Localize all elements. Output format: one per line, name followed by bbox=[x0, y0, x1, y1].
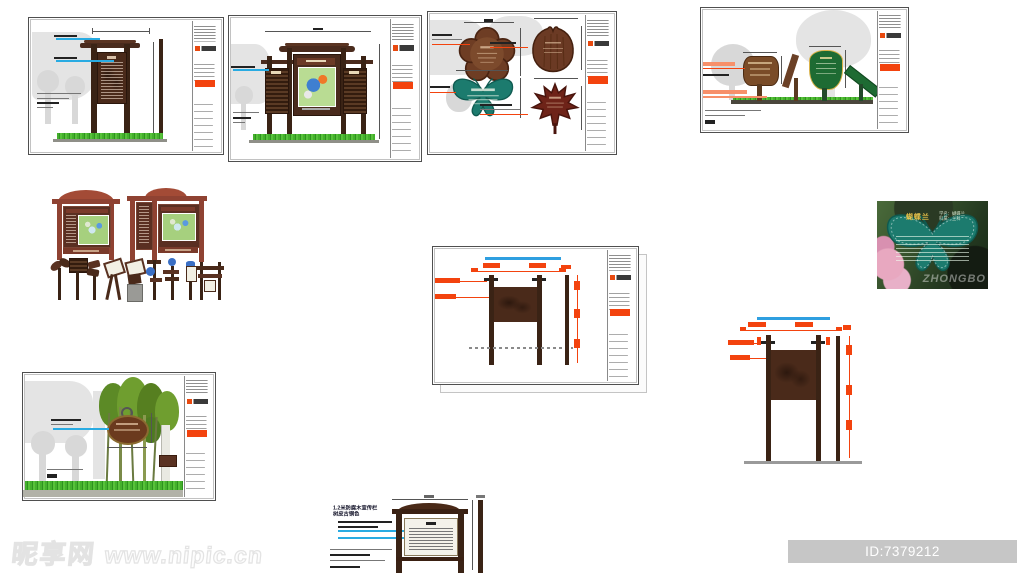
crossbar bbox=[396, 557, 464, 561]
dimension-tick-orange bbox=[846, 385, 852, 395]
tree-trunk-silhouette bbox=[39, 449, 46, 481]
dimension-tick-orange bbox=[826, 337, 830, 345]
company-logo bbox=[880, 33, 901, 38]
dimension-line bbox=[464, 22, 514, 23]
company-logo bbox=[195, 46, 216, 51]
ground-line bbox=[744, 461, 862, 464]
dimension-line bbox=[107, 447, 147, 448]
dimension-line-vertical bbox=[472, 500, 473, 570]
spec-note: 1.2米防腐木宣传栏 树皮古铜色 bbox=[333, 505, 377, 517]
sign-post bbox=[93, 276, 96, 300]
panel-header bbox=[161, 207, 195, 211]
leader-line-cyan bbox=[233, 69, 269, 71]
sign-post bbox=[76, 271, 79, 300]
dimension-label bbox=[484, 19, 493, 22]
green-sign-post bbox=[859, 84, 863, 101]
panel-caption bbox=[302, 108, 330, 110]
slanted-sign-post bbox=[794, 78, 798, 101]
bottom-bar-text bbox=[165, 249, 191, 251]
center-panel-frame bbox=[293, 54, 341, 116]
slat-panel-right bbox=[343, 68, 367, 114]
blue-globe bbox=[146, 267, 155, 276]
note-line bbox=[37, 93, 81, 94]
park-map bbox=[162, 213, 196, 241]
callout-bar bbox=[480, 104, 512, 106]
bottom-bar-text bbox=[73, 250, 99, 252]
note-line bbox=[330, 554, 370, 556]
plaque-green-shield bbox=[809, 50, 843, 90]
leader-line-orange bbox=[490, 47, 528, 48]
dimension-line bbox=[265, 31, 371, 32]
note-line bbox=[705, 115, 745, 116]
callout-bar bbox=[338, 521, 392, 523]
map-board-1 bbox=[52, 190, 120, 262]
narrow-text-panel bbox=[136, 202, 153, 250]
title-block bbox=[192, 21, 220, 151]
drawing-sheet-notice-board bbox=[28, 17, 224, 155]
note-line bbox=[233, 112, 259, 113]
map-board-2 bbox=[127, 188, 207, 264]
plant-sign-body-text bbox=[896, 236, 969, 264]
nipic-watermark: 昵享网 www.nipic.cn bbox=[10, 534, 265, 571]
dimension-line-vertical bbox=[581, 86, 582, 130]
blue-sphere-finial bbox=[168, 258, 176, 266]
blue-reference-line bbox=[757, 317, 830, 320]
tree-trunk-silhouette bbox=[72, 90, 78, 124]
approval-stamp bbox=[610, 309, 630, 316]
board-bottom-bar bbox=[158, 247, 198, 253]
dimension-tick-orange bbox=[574, 339, 580, 348]
panel-header bbox=[66, 209, 108, 213]
plaque-text-line bbox=[116, 423, 138, 425]
note-line bbox=[37, 107, 53, 108]
company-logo bbox=[187, 399, 208, 404]
plaque-maple-leaf bbox=[528, 82, 582, 136]
note-line bbox=[37, 102, 59, 104]
callout-bar bbox=[54, 57, 77, 59]
title-block bbox=[585, 15, 613, 151]
spec-note-line: 树皮古铜色 bbox=[333, 511, 377, 517]
park-map bbox=[78, 215, 109, 245]
tree-trunk-silhouette bbox=[45, 86, 51, 124]
leader-line-cyan bbox=[53, 428, 109, 430]
lectern-base bbox=[127, 284, 143, 302]
panel-title-bar bbox=[107, 56, 116, 59]
dimension-label-orange bbox=[843, 325, 851, 330]
note-line bbox=[705, 110, 761, 111]
post-side-view bbox=[836, 336, 840, 462]
callout-bar-salmon bbox=[703, 62, 735, 66]
dimension-tick bbox=[149, 28, 150, 34]
dimension-line bbox=[92, 31, 150, 32]
note-block bbox=[705, 120, 715, 124]
slat-panel-label bbox=[349, 71, 359, 74]
plaque-post bbox=[822, 88, 827, 101]
tree-mounted-sign bbox=[159, 455, 177, 467]
panel-title bbox=[426, 522, 436, 525]
panel-header-text bbox=[306, 60, 326, 62]
plaque-text-line bbox=[816, 73, 836, 74]
dimension-tick-orange bbox=[740, 327, 746, 331]
approval-stamp bbox=[187, 430, 207, 437]
drawing-sheet-tree-scene bbox=[22, 372, 216, 501]
post-side-view bbox=[478, 500, 483, 573]
dimension-tick-orange bbox=[574, 281, 580, 290]
dimension-label bbox=[476, 495, 485, 498]
drawing-sheet-plaque-signs bbox=[700, 7, 909, 133]
crossbar bbox=[196, 266, 224, 270]
dimension-line bbox=[456, 70, 508, 71]
board-post-left bbox=[57, 199, 62, 260]
dimension-label-orange bbox=[529, 263, 546, 268]
dimension-line bbox=[534, 78, 578, 79]
sign-post-left bbox=[396, 509, 402, 573]
plaque-text-line bbox=[114, 429, 140, 431]
plaque-post bbox=[757, 84, 762, 101]
slat-panel-left bbox=[265, 68, 289, 114]
note-line bbox=[330, 549, 392, 550]
butterfly-photo-card: 蝴蝶兰 学名：蝴蝶兰 科属：兰科 ZHONGBO bbox=[877, 201, 988, 289]
panel-text-lines bbox=[409, 528, 453, 552]
stock-preview-canvas: 蝴蝶兰 学名：蝴蝶兰 科属：兰科 ZHONGBO bbox=[0, 0, 1024, 573]
small-signage-set bbox=[50, 258, 220, 304]
ground-bar bbox=[249, 140, 379, 143]
company-logo bbox=[610, 275, 631, 280]
approval-stamp bbox=[880, 64, 900, 70]
dimension-line bbox=[809, 46, 841, 47]
approval-stamp bbox=[393, 82, 413, 90]
sign-post bbox=[58, 268, 61, 300]
leader-line-cyan bbox=[56, 38, 100, 40]
dimension-line-vertical bbox=[520, 78, 521, 118]
sign-post-right bbox=[816, 335, 821, 462]
callout-bar bbox=[430, 86, 450, 88]
board-bottom-bar bbox=[63, 248, 109, 254]
dimension-line-vertical bbox=[151, 413, 152, 443]
drawing-sheet-gateway-board bbox=[228, 15, 422, 162]
post-side-view bbox=[565, 275, 569, 365]
note-line bbox=[233, 117, 251, 119]
note-line bbox=[51, 424, 73, 425]
leader-line-cyan bbox=[56, 60, 114, 62]
title-block bbox=[390, 19, 418, 158]
park-map bbox=[298, 67, 336, 107]
crossbar bbox=[198, 274, 222, 278]
dimension-tick-orange bbox=[757, 337, 761, 345]
plaque-text-line bbox=[820, 57, 832, 59]
top-beam bbox=[392, 509, 468, 514]
note-line bbox=[480, 109, 520, 110]
lectern-leg bbox=[114, 274, 121, 300]
title-block bbox=[607, 250, 635, 381]
panel-text-column bbox=[139, 206, 149, 244]
blue-reference-line bbox=[485, 257, 561, 260]
approval-stamp bbox=[588, 76, 608, 83]
image-id-bar: ID:7379212 NO:20150410125727511000 bbox=[788, 540, 1017, 563]
note-block bbox=[47, 474, 57, 478]
leader-line-orange bbox=[435, 281, 487, 282]
dimension-tick bbox=[92, 28, 93, 34]
plant-meta-line: 学名：蝴蝶兰 bbox=[939, 212, 965, 217]
nipic-url-text: www.nipic.cn bbox=[104, 542, 265, 568]
panel-header bbox=[297, 58, 335, 65]
tree-trunk-silhouette bbox=[241, 100, 246, 130]
panel-text-column bbox=[66, 215, 76, 243]
sign-panel bbox=[771, 350, 816, 400]
top-beam bbox=[127, 196, 207, 201]
tree-trunk-silhouette bbox=[72, 451, 79, 481]
dimension-line-vertical bbox=[781, 56, 782, 84]
dimension-tick-orange bbox=[836, 327, 842, 331]
plant-meta-line: 科属：兰科 bbox=[939, 217, 965, 222]
title-block bbox=[877, 11, 905, 129]
sign-panel bbox=[494, 287, 537, 322]
dimension-label-orange bbox=[483, 263, 500, 268]
sign-top-beam bbox=[80, 43, 140, 48]
callout-bar bbox=[51, 419, 81, 421]
callout-bar bbox=[54, 35, 77, 37]
plaque-text-line bbox=[750, 68, 770, 70]
dimension-label bbox=[424, 495, 434, 498]
brand-watermark: ZHONGBO bbox=[923, 273, 986, 285]
plant-sign-meta: 学名：蝴蝶兰 科属：兰科 bbox=[939, 212, 965, 222]
arrow-board bbox=[163, 270, 179, 274]
dimension-label-orange bbox=[748, 322, 766, 327]
dimension-line bbox=[392, 499, 468, 500]
grass-strip bbox=[25, 481, 183, 490]
arrow-board bbox=[165, 277, 179, 281]
dimension-line-orange bbox=[742, 330, 842, 331]
dimension-line-orange bbox=[473, 271, 565, 272]
ground-bar bbox=[23, 490, 183, 497]
plaque-brown bbox=[743, 56, 779, 86]
title-block bbox=[184, 376, 212, 497]
callout-bar bbox=[490, 42, 516, 44]
drawing-sheet-construction-detail bbox=[432, 246, 639, 385]
dimension-label-orange bbox=[795, 322, 813, 327]
panel-text-lines bbox=[101, 62, 123, 100]
plaque-peach bbox=[528, 24, 578, 76]
small-panel bbox=[204, 280, 216, 292]
sign-post-right bbox=[537, 275, 542, 365]
leader-line-orange bbox=[480, 114, 528, 115]
dimension-label-orange bbox=[561, 265, 571, 269]
dimension-line-vertical bbox=[520, 28, 521, 76]
sign-post bbox=[189, 281, 192, 300]
sign-panel-white bbox=[404, 518, 458, 556]
dimension-label bbox=[313, 28, 323, 30]
nipic-logo-text: 昵享网 bbox=[10, 539, 97, 569]
leader-line-orange bbox=[435, 297, 491, 298]
note-line bbox=[330, 566, 360, 568]
dimension-tick-orange bbox=[846, 420, 852, 430]
leader-line-salmon bbox=[703, 96, 767, 98]
company-logo bbox=[393, 45, 414, 51]
callout-bar bbox=[703, 74, 729, 76]
callout-bar bbox=[231, 66, 255, 68]
approval-stamp bbox=[195, 80, 215, 87]
note-line bbox=[47, 469, 83, 470]
lectern-leg bbox=[105, 274, 113, 300]
note-line bbox=[233, 122, 245, 123]
drawing-sheet-shaped-plaques bbox=[427, 11, 617, 155]
plaque-text-line bbox=[748, 62, 772, 64]
company-logo bbox=[588, 41, 609, 46]
callout-bar bbox=[338, 526, 378, 528]
note-line bbox=[37, 98, 69, 99]
plant-sign-title: 蝴蝶兰 bbox=[906, 212, 930, 222]
board-panel bbox=[63, 206, 111, 248]
plaque-text-line bbox=[750, 74, 770, 76]
note-line bbox=[330, 560, 385, 561]
post-side-view bbox=[159, 39, 163, 139]
dimension-tick-orange bbox=[574, 309, 580, 318]
dimension-line bbox=[534, 18, 578, 19]
ground-bar bbox=[53, 139, 167, 142]
ground-dashed-line bbox=[469, 347, 573, 349]
note-line bbox=[432, 39, 462, 40]
leader-line-orange bbox=[430, 92, 456, 93]
callout-bar-salmon bbox=[703, 90, 747, 94]
leader-line-orange bbox=[703, 68, 745, 69]
dimension-line-vertical bbox=[379, 44, 380, 139]
callout-bar bbox=[432, 34, 452, 36]
sign-post-right bbox=[458, 509, 464, 573]
dimension-tick-orange bbox=[471, 268, 478, 272]
plaque-text-line bbox=[816, 63, 836, 64]
dimension-line bbox=[743, 52, 777, 53]
birch-trunk bbox=[161, 425, 170, 481]
board-post bbox=[130, 196, 135, 262]
oval-plaque bbox=[107, 415, 149, 445]
crossbar bbox=[150, 278, 162, 282]
map-panel bbox=[158, 204, 200, 248]
dimension-line-vertical bbox=[581, 26, 582, 70]
slat-panel-label bbox=[271, 71, 281, 74]
leader-line-orange bbox=[432, 44, 470, 45]
dimension-tick-orange bbox=[846, 345, 852, 355]
ground-bar bbox=[731, 100, 873, 104]
plaque-text-line bbox=[816, 68, 836, 69]
dimension-line-vertical bbox=[153, 42, 154, 138]
